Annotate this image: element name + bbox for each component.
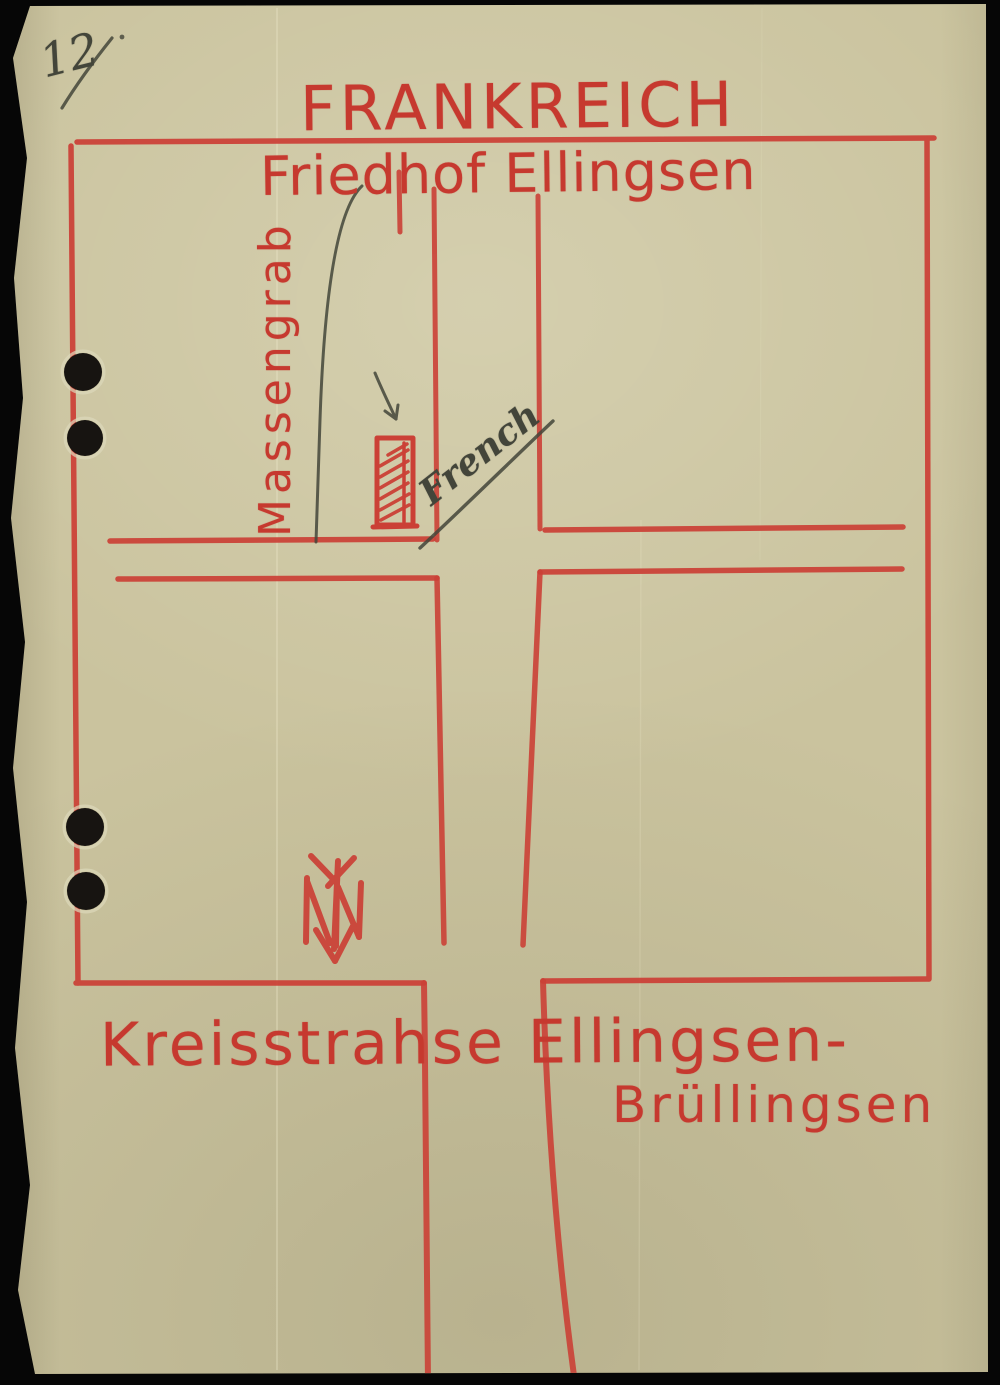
- mass-grave-label: Massengrab: [250, 220, 301, 537]
- north-arrow-icon: [306, 856, 361, 961]
- map-title-country: FRANKREICH: [300, 68, 737, 146]
- cemetery-boundary: [71, 138, 934, 983]
- scanned-document: { "document": { "page_number_annotation"…: [0, 0, 1000, 1385]
- punch-hole: [67, 872, 105, 910]
- cross-road: [110, 527, 903, 579]
- punch-holes: [62, 351, 107, 912]
- mass-grave-marker: [373, 438, 417, 527]
- punch-hole: [67, 420, 103, 456]
- lower-path: [437, 572, 540, 945]
- pencil-arrow-icon: [375, 373, 398, 419]
- paper-sheet: 12 FRANKREICH Friedhof Ellingsen Masseng…: [0, 0, 1000, 1385]
- map-drawing: [0, 0, 1000, 1385]
- map-subtitle-cemetery: Friedhof Ellingsen: [260, 139, 757, 208]
- paper-creases: [277, 8, 762, 1370]
- pencil-leader-line: [316, 186, 362, 542]
- punch-hole: [64, 353, 102, 391]
- road-name-line1: Kreisstrahse Ellingsen-: [100, 1005, 850, 1080]
- punch-hole: [66, 808, 104, 846]
- road-name-line2: Brüllingsen: [612, 1076, 936, 1134]
